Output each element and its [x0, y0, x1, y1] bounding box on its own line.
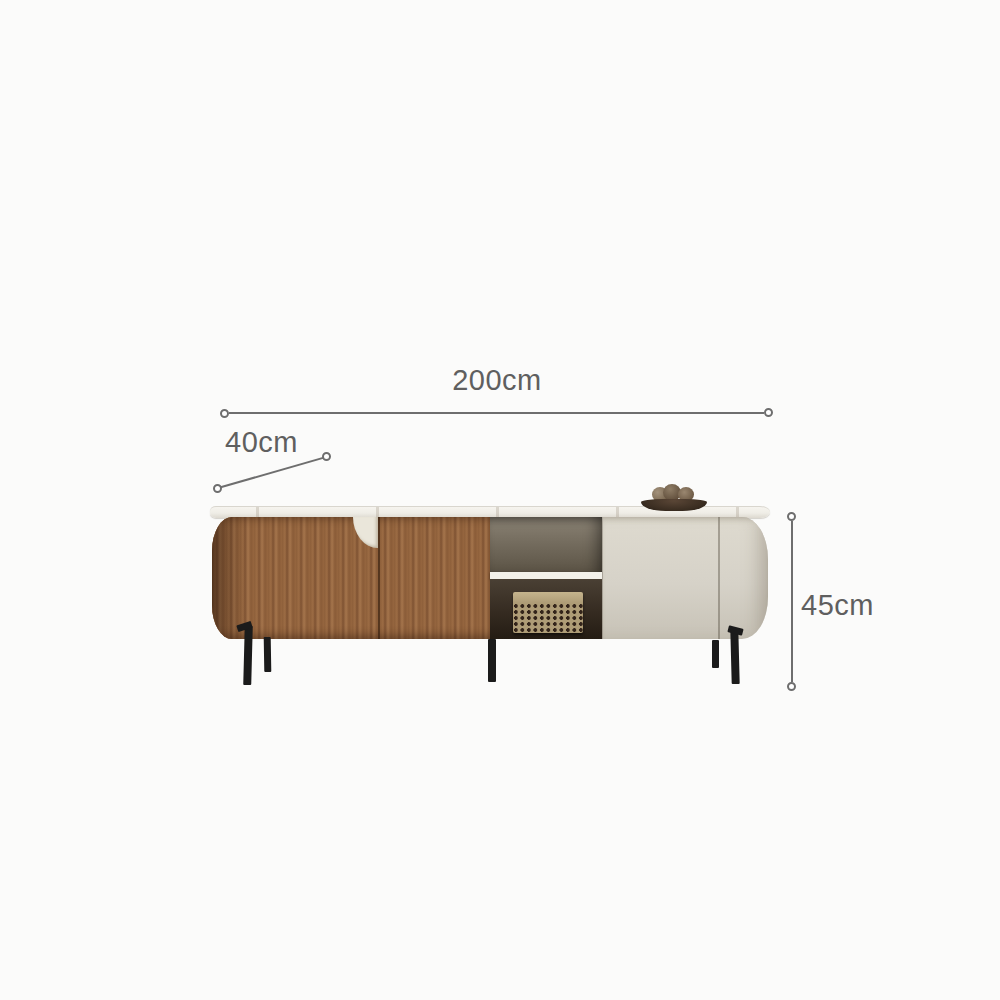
height-dimension-line [791, 521, 793, 682]
width-dimension-label: 200cm [437, 364, 557, 397]
recessed-door-handle [353, 517, 378, 548]
dimension-endpoint-dot-icon [787, 512, 796, 521]
width-dimension-line [229, 412, 764, 414]
depth-dimension-label: 40cm [225, 426, 298, 459]
middle-shelf-board [490, 572, 603, 579]
dimension-endpoint-dot-icon [322, 452, 331, 461]
basket-rim [513, 592, 583, 603]
leg-front-right [730, 629, 739, 684]
dimension-endpoint-dot-icon [764, 408, 773, 417]
open-shelf-section [490, 517, 603, 639]
leg-rear-right [712, 640, 719, 668]
leg-middle [488, 639, 496, 682]
wood-door-section [212, 517, 490, 639]
product-dimension-image: 200cm 40cm 45cm [0, 0, 1000, 1000]
decor-bowl [641, 499, 707, 511]
depth-dimension-line [218, 456, 326, 489]
leg-front-left [243, 626, 253, 685]
cabinet-body [212, 517, 768, 639]
upper-shelf-cavity [490, 517, 603, 572]
dimension-endpoint-dot-icon [787, 682, 796, 691]
woven-storage-basket [513, 592, 583, 633]
basket-weave-pattern [513, 603, 583, 633]
lower-shelf-cavity [490, 579, 603, 639]
cream-door-section [602, 517, 768, 639]
dimension-endpoint-dot-icon [213, 484, 222, 493]
dimension-endpoint-dot-icon [220, 409, 229, 418]
leg-rear-left [264, 637, 272, 672]
height-dimension-label: 45cm [801, 589, 874, 622]
cream-door-seam [718, 517, 720, 639]
wood-door-seam [378, 517, 380, 639]
